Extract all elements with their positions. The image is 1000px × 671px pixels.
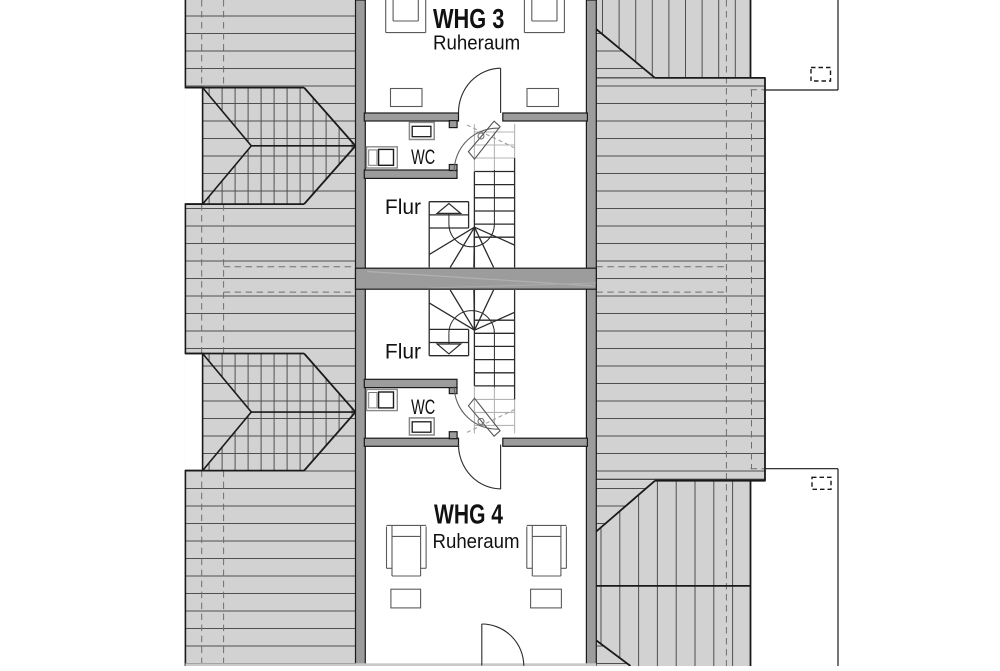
svg-text:WC: WC: [411, 145, 435, 169]
svg-text:Flur: Flur: [385, 195, 421, 219]
svg-text:Ruheraum: Ruheraum: [433, 530, 520, 553]
svg-text:Ruheraum: Ruheraum: [433, 32, 520, 55]
svg-text:WHG 4: WHG 4: [434, 498, 503, 529]
svg-text:WHG 3: WHG 3: [433, 3, 504, 34]
svg-text:WC: WC: [411, 395, 435, 419]
svg-text:Flur: Flur: [385, 339, 421, 363]
